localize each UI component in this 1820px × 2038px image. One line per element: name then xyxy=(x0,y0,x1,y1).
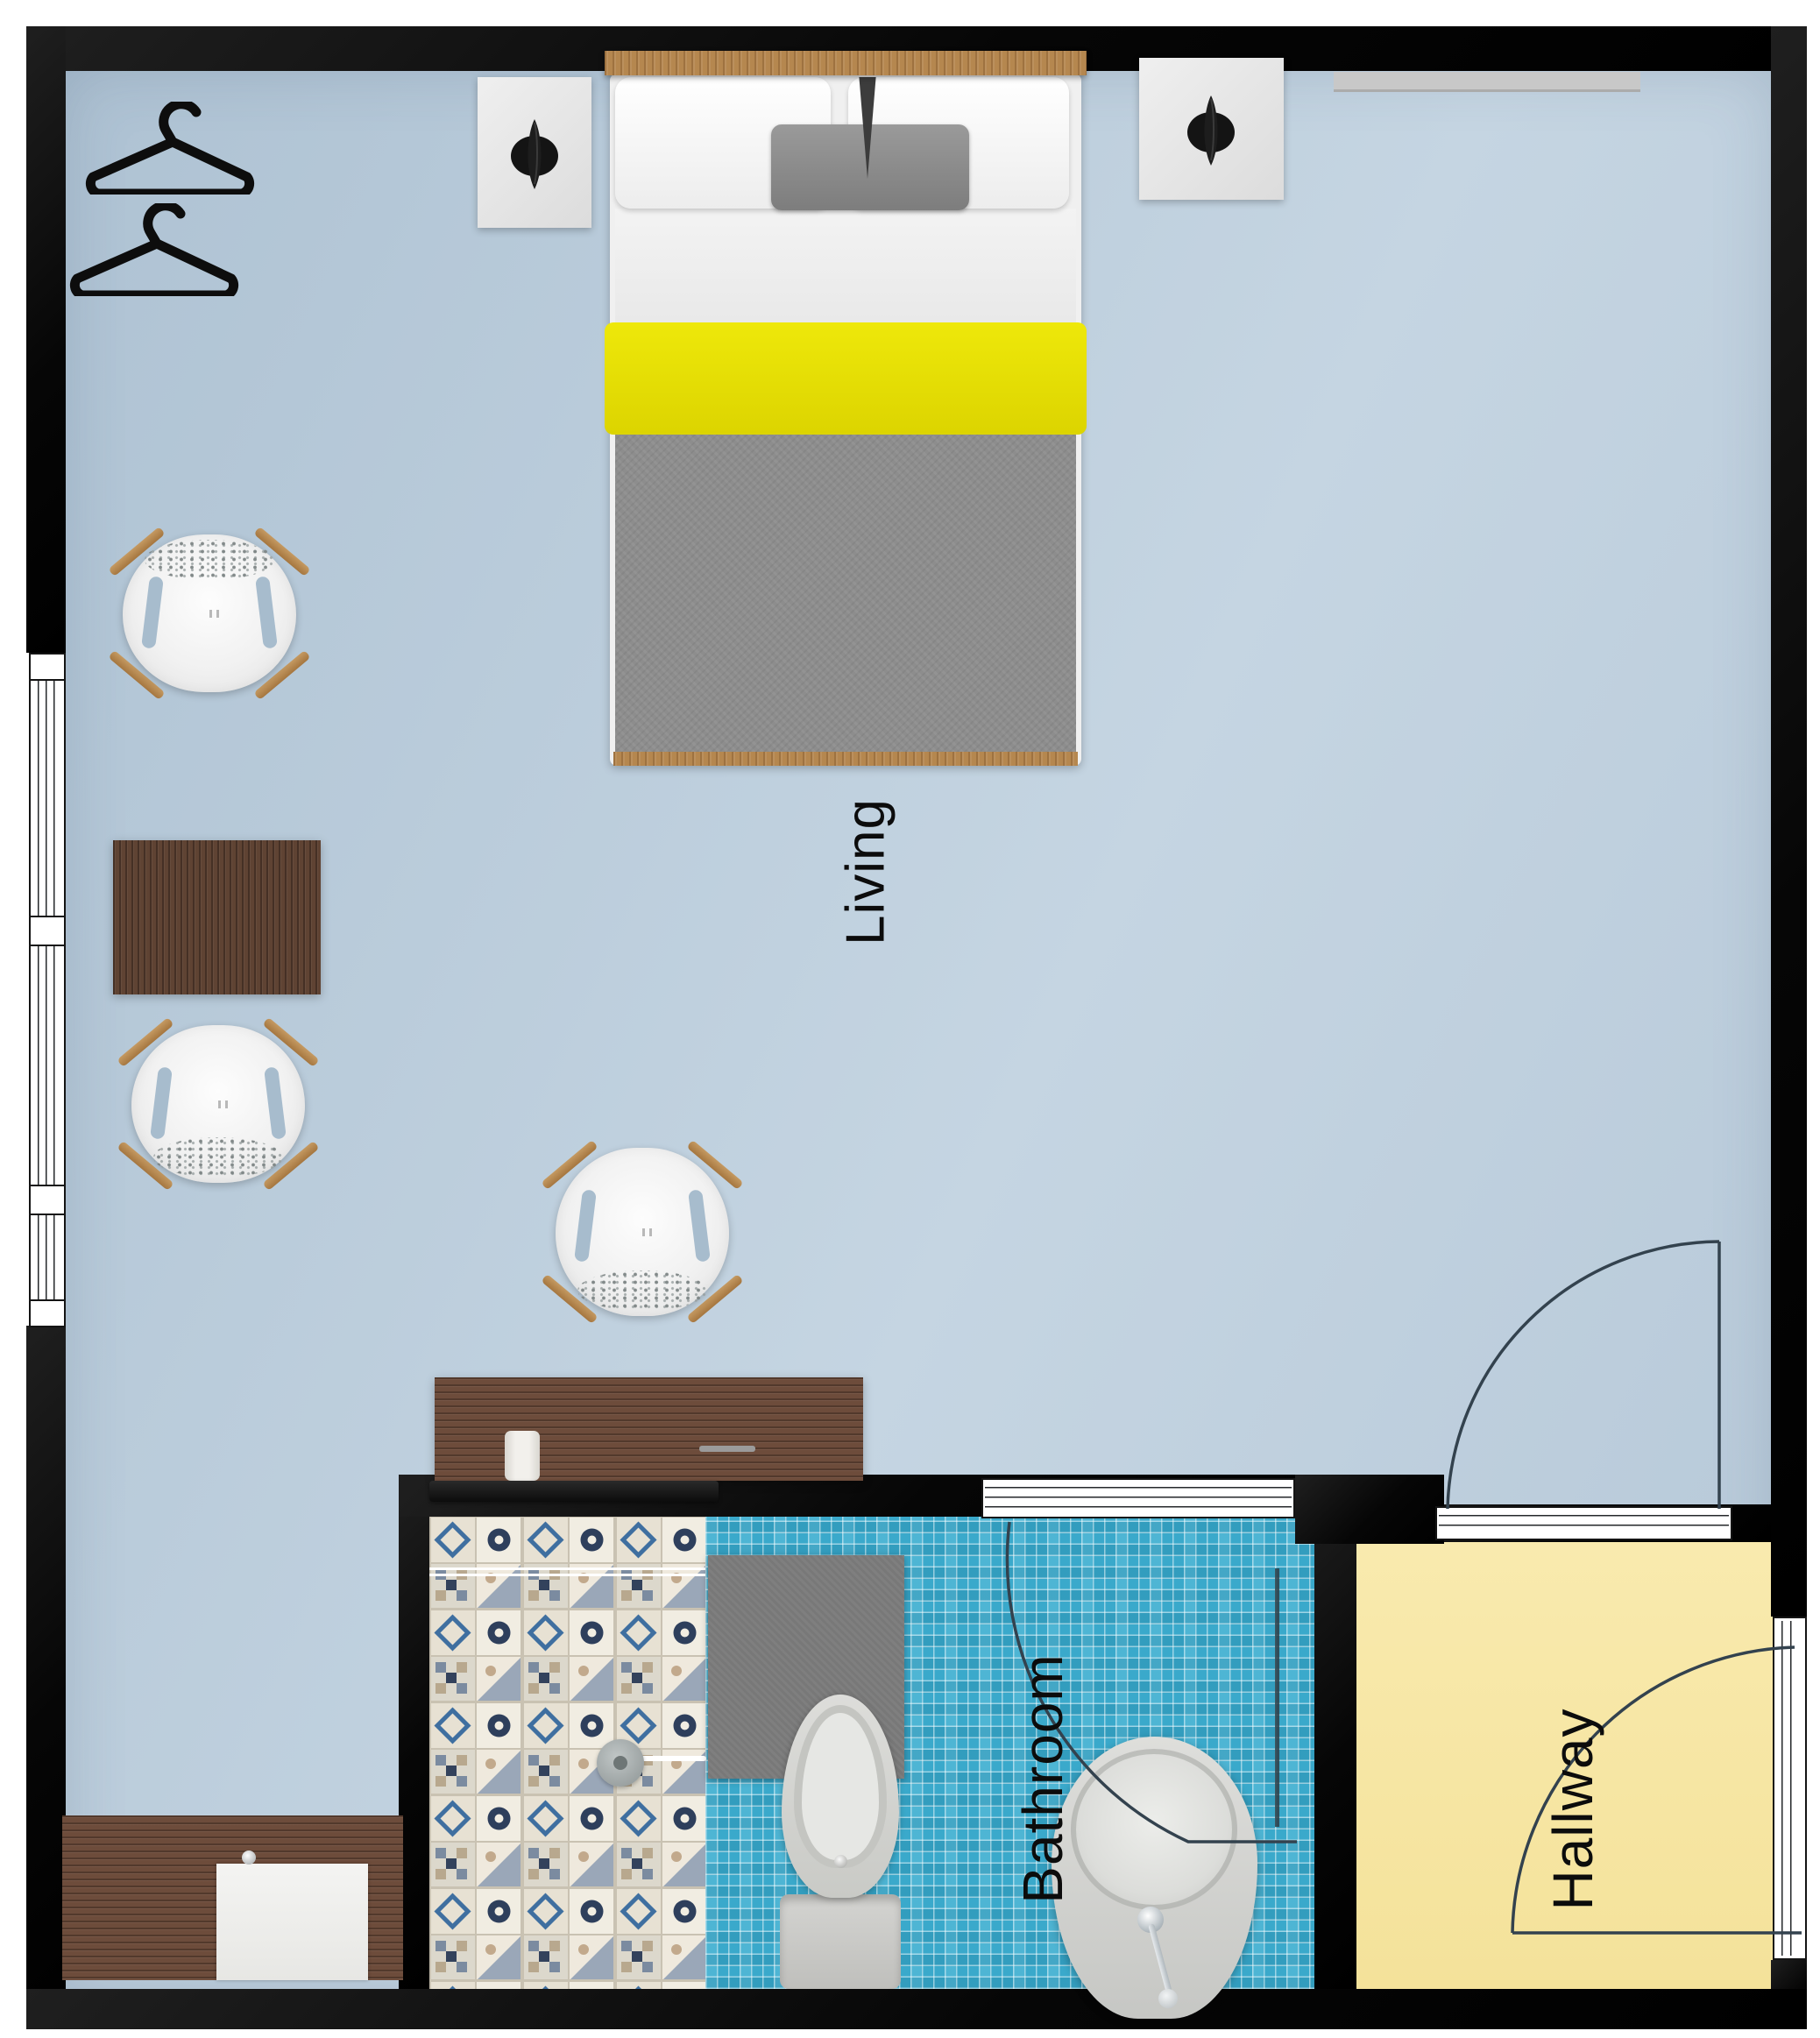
hallway-door-swing-arc xyxy=(1448,1242,1719,1509)
room-label-bathroom: Bathroom xyxy=(1010,1653,1075,1903)
room-label-living: Living xyxy=(835,798,897,945)
floor-plan: Living Bathroom Hallway xyxy=(0,0,1820,2038)
room-label-hallway: Hallway xyxy=(1540,1708,1605,1910)
